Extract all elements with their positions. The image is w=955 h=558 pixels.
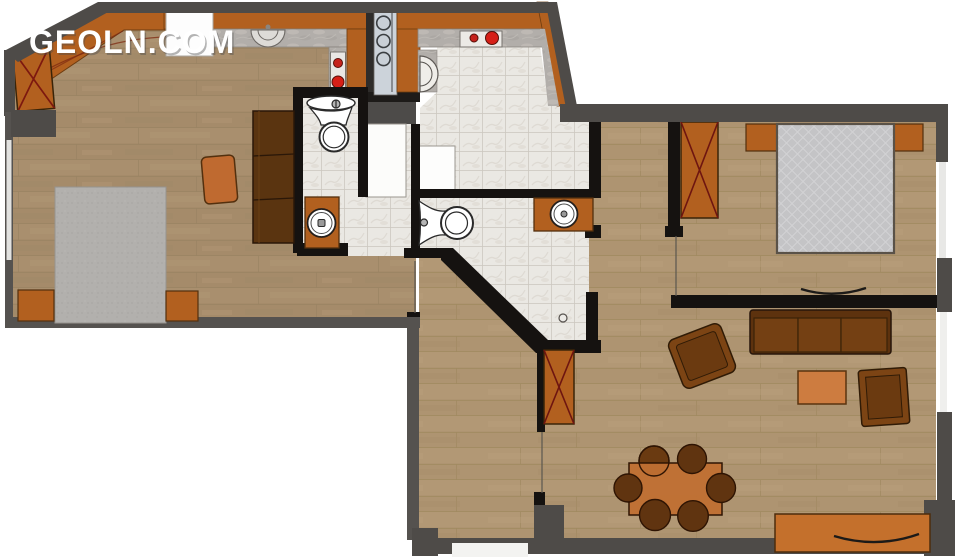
svg-text:GEOLN.COM: GEOLN.COM bbox=[29, 24, 235, 60]
